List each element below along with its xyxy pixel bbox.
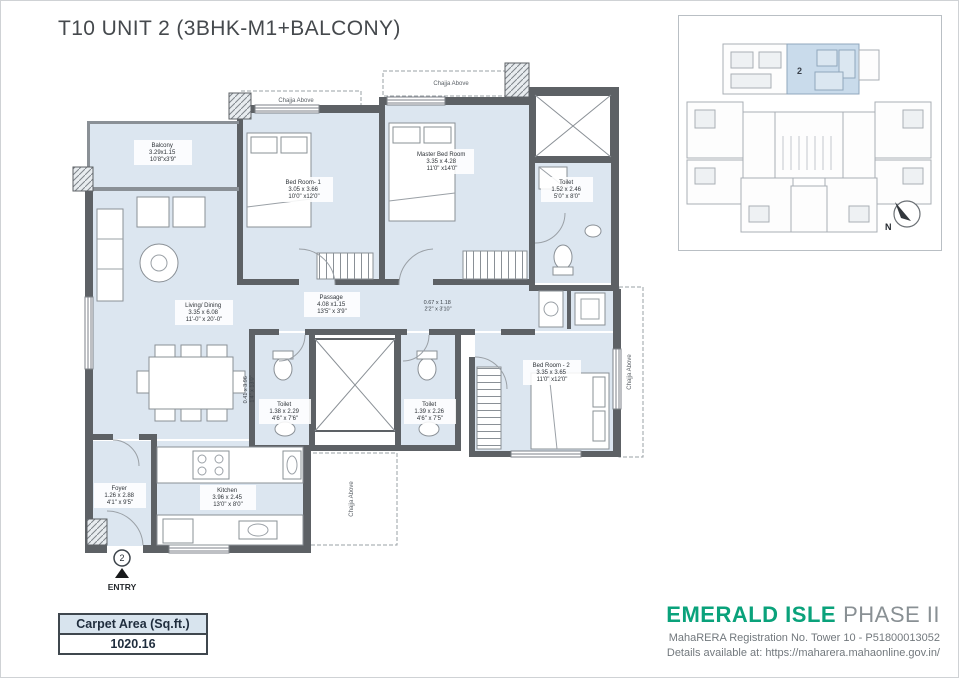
bed1-dim-m: 3.05 x 3.66: [288, 187, 318, 193]
balcony-dim-ft: 10'8"x3'9": [150, 157, 176, 163]
kitchen-platform: [157, 515, 303, 545]
passage-end-dim-m: 0.67 x 1.18: [424, 300, 451, 306]
bed2-wardrobe: [477, 367, 501, 449]
toilet2-dim-ft: 4'6" x 7'6": [272, 416, 298, 422]
entry-arrow-icon: [115, 568, 129, 578]
footer-branding: EMERALD ISLEPHASE II MahaRERA Registrati…: [666, 601, 940, 660]
brand-phase: PHASE II: [843, 602, 940, 627]
passage-label: Passage 4.08 x1.15 13'5" x 3'9": [317, 295, 347, 315]
window-living: [85, 297, 93, 369]
passage-floor: [243, 283, 535, 331]
carpet-area-header: Carpet Area (Sq.ft.): [58, 613, 208, 635]
bed1-label: Bed Room- 1 3.05 x 3.66 10'0" x12'0": [285, 180, 322, 200]
foyer-dim-ft: 4'1" x 9'5": [107, 500, 133, 506]
chajja-label-bottom: Chajja Above: [349, 481, 355, 517]
toilet2-dim-m: 1.38 x 2.29: [269, 409, 299, 415]
window-kitchen: [169, 545, 229, 553]
toilet-master-dim-ft: 5'0" x 8'0": [554, 194, 580, 200]
bed2-dim-ft: 11'0" x12'0": [537, 377, 568, 383]
toilet-master-name: Toilet: [559, 180, 573, 186]
kitchen-counter: [157, 447, 303, 483]
kitchen-name: Kitchen: [217, 488, 237, 494]
master-wardrobe: [463, 251, 527, 279]
passage-dim-ft: 13'5" x 3'9": [317, 309, 347, 315]
balcony-dim-m: 3.29x1.15: [149, 150, 176, 156]
key-plan-units: [687, 44, 931, 232]
carpet-area-value: 1020.16: [58, 635, 208, 655]
living-dim-m: 3.35 x 6.08: [188, 310, 218, 316]
brand-line: EMERALD ISLEPHASE II: [666, 601, 940, 630]
living-center-table: [140, 244, 178, 282]
kitchen-dim-ft: 13'0" x 8'0": [213, 502, 243, 508]
living-side-dim: 0.41 x 3.96 1'4" x 13'0": [243, 375, 256, 404]
carpet-area-table: Carpet Area (Sq.ft.) 1020.16: [58, 613, 208, 655]
balcony-label: Balcony 3.29x1.15 10'8"x3'9": [149, 143, 177, 163]
foyer-name: Foyer: [111, 486, 126, 492]
floor-plan-page: T10 UNIT 2 (3BHK-M1+BALCONY): [0, 0, 959, 678]
toilet3-name: Toilet: [422, 402, 436, 408]
north-label: N: [885, 222, 892, 232]
bed1-wardrobe: [317, 253, 373, 279]
window-bed2-bottom: [511, 451, 581, 457]
key-plan-drawing: 2 N: [679, 16, 939, 248]
key-plan: 2 N: [678, 15, 942, 251]
rera-registration: MahaRERA Registration No. Tower 10 - P51…: [666, 631, 940, 645]
passage-dim-m: 4.08 x1.15: [317, 302, 346, 308]
master-dim-ft: 11'0" x14'0": [427, 166, 458, 172]
living-name: Living/ Dining: [185, 303, 221, 309]
living-dim-ft: 11'-0" x 20'-0": [186, 317, 222, 323]
entry-marker: 2 ENTRY: [108, 550, 137, 592]
lift-shaft-mid: [315, 339, 395, 431]
master-dim-m: 3.35 x 4.28: [426, 159, 456, 165]
toilet-master-dim-m: 1.52 x 2.46: [551, 187, 581, 193]
living-side-dim-m: 0.41 x 3.96: [243, 376, 249, 403]
window-master: [387, 97, 445, 105]
master-name: Master Bed Room: [417, 152, 465, 158]
chajja-label-right: Chajja Above: [627, 354, 633, 390]
entry-unit-number: 2: [119, 553, 124, 563]
kitchen-dim-m: 3.96 x 2.45: [212, 495, 242, 501]
bed1-name: Bed Room- 1: [285, 180, 321, 186]
entry-label: ENTRY: [108, 582, 137, 592]
lift-shaft-top: [535, 95, 611, 157]
passage-end-dim-ft: 2'2" x 3'10": [424, 307, 451, 313]
key-plan-unit-number: 2: [797, 66, 802, 76]
rera-details-url: Details available at: https://maharera.m…: [666, 646, 940, 660]
balcony-name: Balcony: [151, 143, 172, 149]
north-arrow-icon: [894, 201, 920, 227]
passage-end-dim: 0.67 x 1.18 2'2" x 3'10": [424, 300, 453, 313]
chajja-label-topright: Chajja Above: [433, 81, 469, 87]
chajja-label-topleft: Chajja Above: [278, 98, 314, 104]
foyer-dim-m: 1.26 x 2.88: [104, 493, 134, 499]
window-bed2: [613, 349, 621, 409]
bed2-name: Bed Room - 2: [533, 363, 571, 369]
passage-name: Passage: [319, 295, 343, 301]
toilet3-dim-m: 1.39 x 2.26: [414, 409, 444, 415]
bed1-dim-ft: 10'0" x12'0": [288, 194, 319, 200]
toilet3-dim-ft: 4'6" x 7'5": [417, 416, 443, 422]
brand-name: EMERALD ISLE: [666, 602, 836, 627]
living-side-dim-ft: 1'4" x 13'0": [250, 375, 256, 402]
window-bed1: [255, 105, 319, 113]
bed2-dim-m: 3.35 x 3.65: [536, 370, 566, 376]
living-label: Living/ Dining 3.35 x 6.08 11'-0" x 20'-…: [185, 303, 223, 323]
bed2-label: Bed Room - 2 3.35 x 3.65 11'0" x12'0": [533, 363, 572, 383]
toilet2-name: Toilet: [277, 402, 291, 408]
